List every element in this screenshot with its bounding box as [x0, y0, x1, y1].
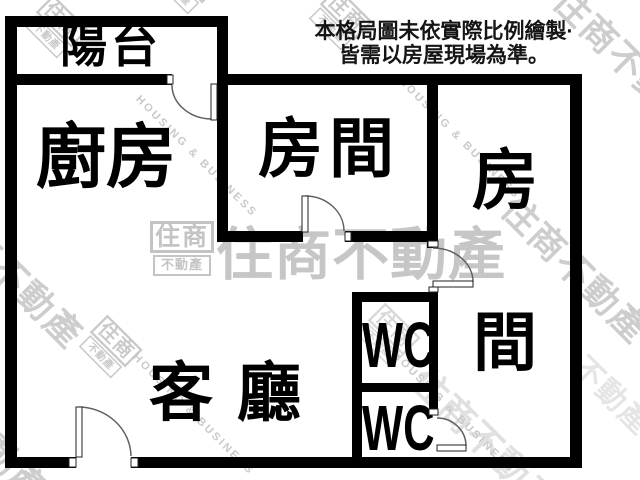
doors-layer — [0, 0, 640, 480]
door-leaf-entrance — [76, 407, 82, 457]
door-arc-bedroom-right — [433, 248, 473, 282]
door-leaf-bedroom-middle — [302, 196, 308, 232]
door-jamb — [69, 458, 76, 467]
door-arc-entrance — [79, 407, 131, 456]
door-leaf-bedroom-right — [433, 281, 473, 287]
door-leaf-balcony — [211, 84, 217, 120]
door-arc-wc-lower — [437, 418, 466, 446]
door-jamb — [429, 409, 438, 415]
door-jamb — [131, 458, 138, 467]
door-jamb — [428, 241, 438, 247]
door-jamb — [345, 232, 351, 241]
door-arc-balcony — [172, 85, 211, 119]
door-jamb — [167, 75, 173, 84]
door-leaf-wc-lower — [437, 445, 466, 451]
door-jamb — [429, 287, 438, 292]
door-arc-bedroom-middle — [305, 196, 344, 231]
floor-plan: 住商不動產 住商不動產 住商不動產 住商不動產 住商不動產 住商不動產 不動產 … — [0, 0, 640, 480]
